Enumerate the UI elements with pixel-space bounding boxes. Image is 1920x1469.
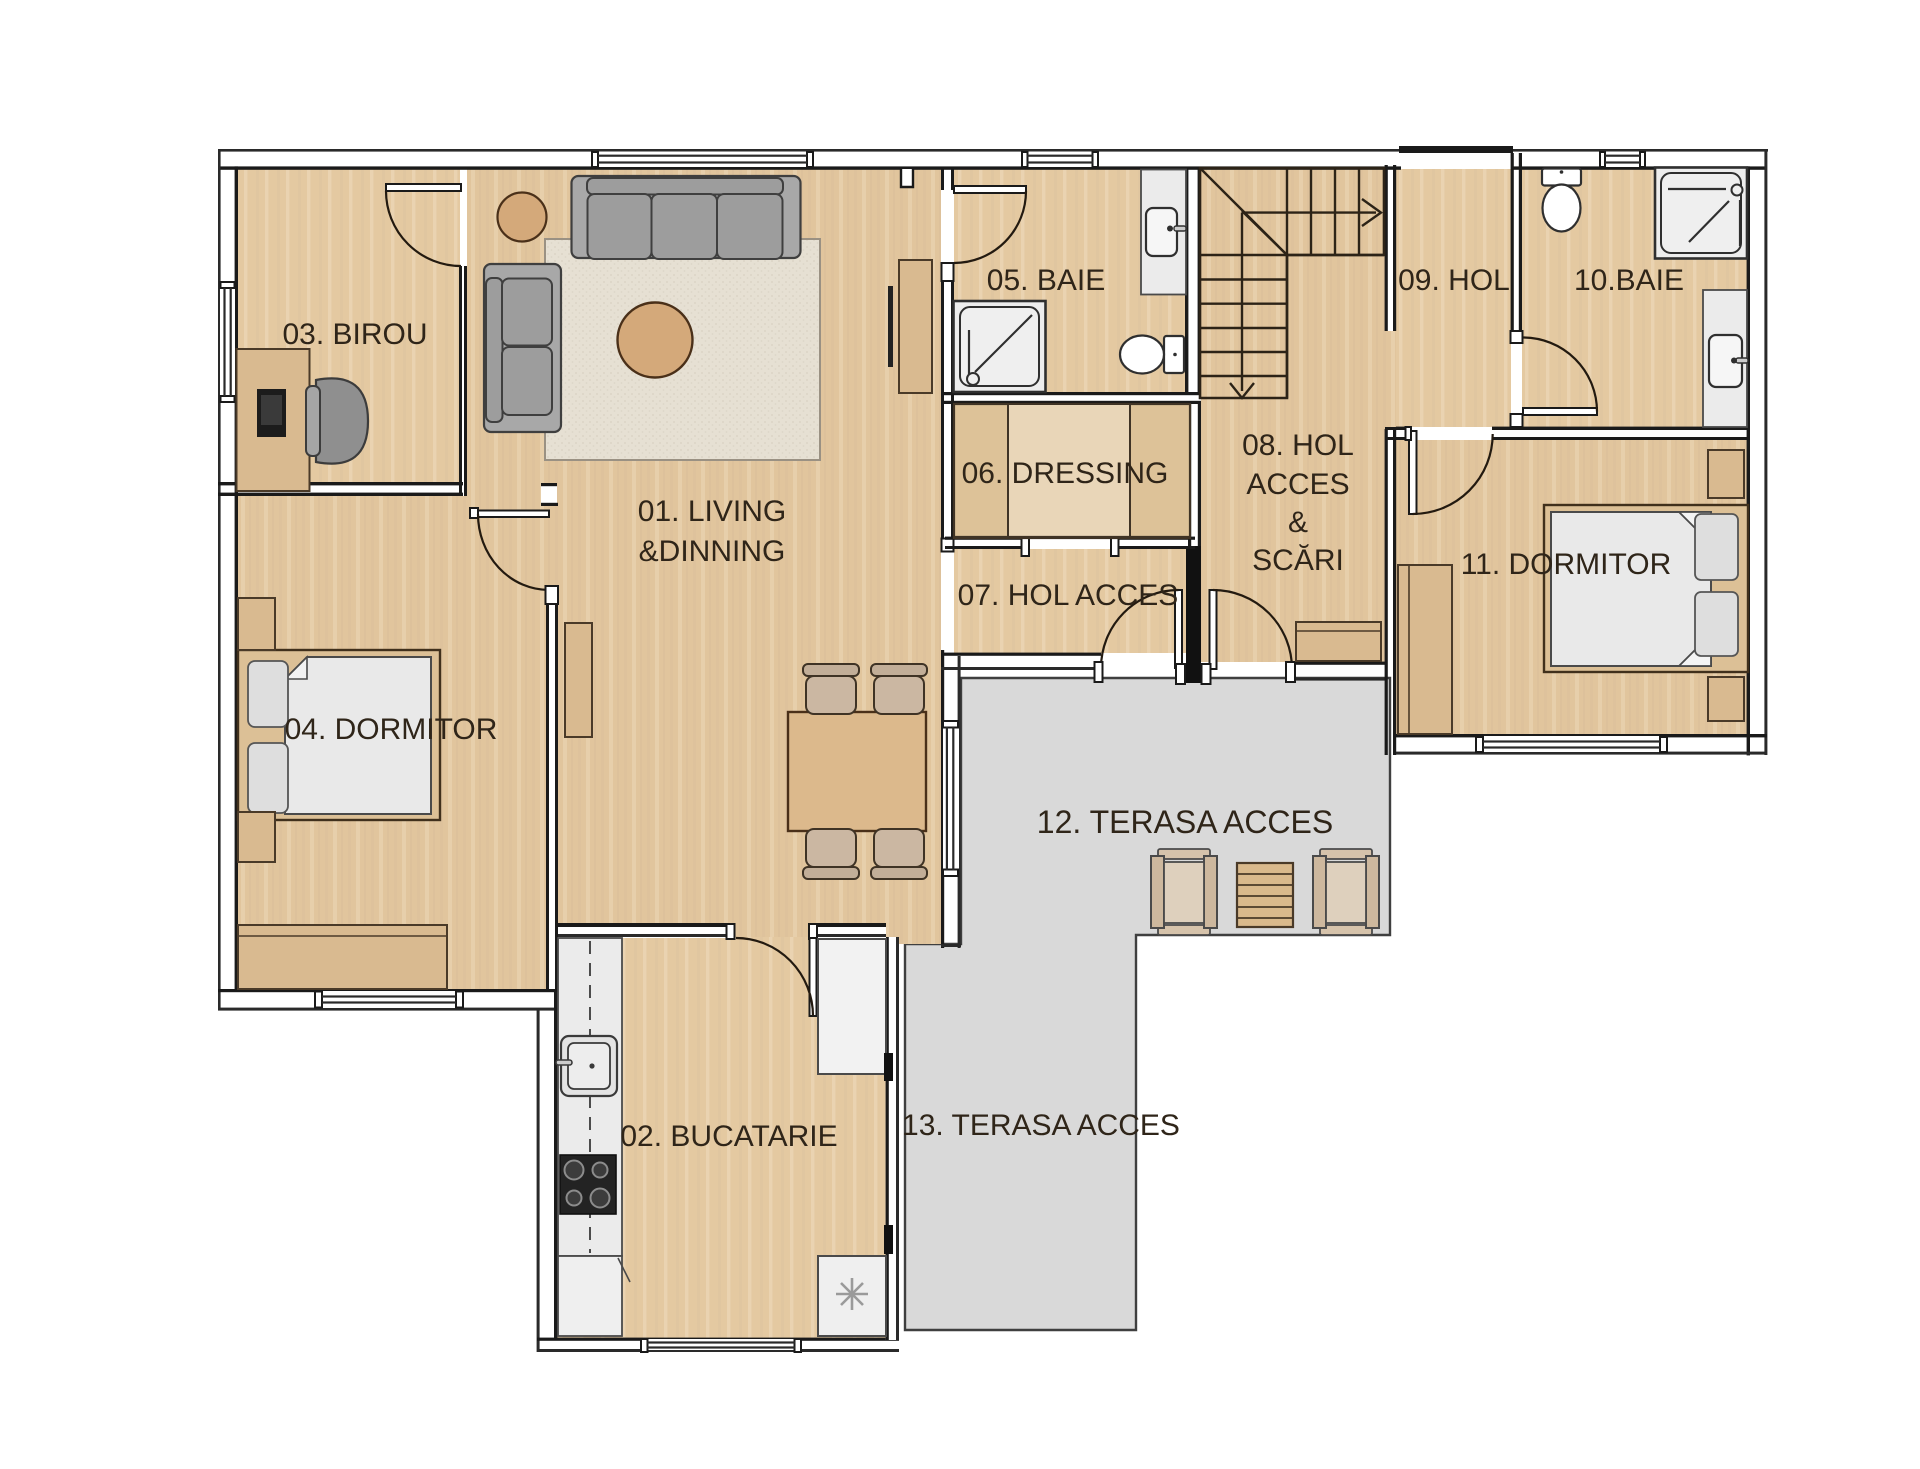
svg-text:01. LIVING: 01. LIVING (638, 495, 786, 528)
svg-text:03. BIROU: 03. BIROU (282, 318, 427, 351)
svg-text:13. TERASA ACCES: 13. TERASA ACCES (902, 1109, 1180, 1142)
svg-text:04. DORMITOR: 04. DORMITOR (285, 713, 498, 746)
svg-text:07. HOL ACCES: 07. HOL ACCES (958, 579, 1179, 612)
svg-text:11. DORMITOR: 11. DORMITOR (1461, 548, 1672, 581)
svg-text:12. TERASA ACCES: 12. TERASA ACCES (1037, 804, 1333, 840)
svg-text:06. DRESSING: 06. DRESSING (962, 457, 1169, 490)
svg-text:08. HOL: 08. HOL (1242, 429, 1354, 462)
svg-text:02. BUCATARIE: 02. BUCATARIE (620, 1120, 837, 1153)
svg-text:09. HOL: 09. HOL (1398, 264, 1510, 297)
svg-text:SCĂRI: SCĂRI (1252, 544, 1344, 577)
svg-text:10.BAIE: 10.BAIE (1574, 264, 1684, 297)
svg-text:05. BAIE: 05. BAIE (987, 264, 1105, 297)
svg-text:&DINNING: &DINNING (639, 535, 786, 568)
svg-text:ACCES: ACCES (1246, 468, 1349, 501)
svg-text:&: & (1288, 506, 1308, 539)
